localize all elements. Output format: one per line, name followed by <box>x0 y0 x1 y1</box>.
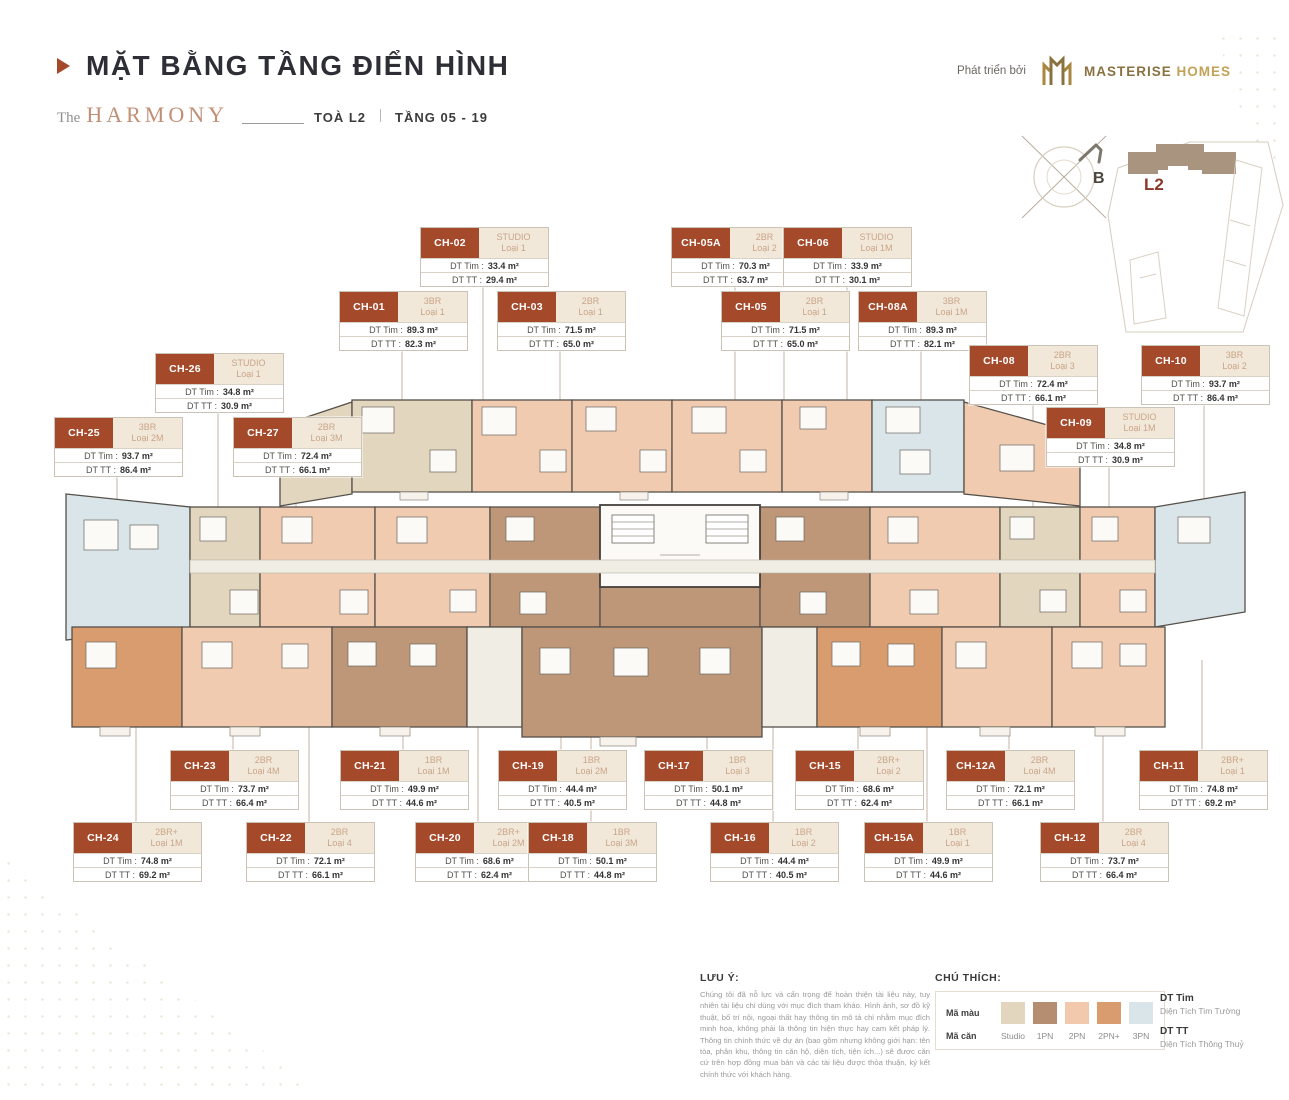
unit-code: CH-15 <box>796 751 854 781</box>
unit-dt-tt: DT TT :29.4 m² <box>421 272 548 286</box>
unit-card: CH-253BRLoại 2MDT Tim :93.7 m²DT TT :86.… <box>54 417 183 477</box>
unit-code: CH-18 <box>529 823 587 853</box>
unit-dt-tim: DT Tim :72.4 m² <box>234 448 361 462</box>
unit-code: CH-22 <box>247 823 305 853</box>
unit-type: 1BRLoại 1M <box>399 751 468 781</box>
unit-code: CH-24 <box>74 823 132 853</box>
unit-type: STUDIOLoại 1M <box>842 228 911 258</box>
unit-card: CH-222BRLoại 4DT Tim :72.1 m²DT TT :66.1… <box>246 822 375 882</box>
unit-dt-tt: DT TT :66.1 m² <box>234 462 361 476</box>
unit-dt-tim: DT Tim :34.8 m² <box>156 384 283 398</box>
unit-card: CH-272BRLoại 3MDT Tim :72.4 m²DT TT :66.… <box>233 417 362 477</box>
unit-dt-tt: DT TT :40.5 m² <box>711 867 838 881</box>
floor-plan-drawing: B L2 <box>0 0 1289 1100</box>
unit-dt-tim: DT Tim :72.1 m² <box>247 853 374 867</box>
unit-dt-tim: DT Tim :71.5 m² <box>722 322 849 336</box>
unit-code: CH-12A <box>947 751 1005 781</box>
unit-dt-tt: DT TT :66.4 m² <box>1041 867 1168 881</box>
unit-dt-tt: DT TT :65.0 m² <box>498 336 625 350</box>
unit-type: 2BRLoại 4 <box>305 823 374 853</box>
unit-dt-tim: DT Tim :72.1 m² <box>947 781 1074 795</box>
unit-code: CH-05 <box>722 292 780 322</box>
unit-dt-tim: DT Tim :68.6 m² <box>416 853 543 867</box>
unit-dt-tim: DT Tim :33.4 m² <box>421 258 548 272</box>
unit-card: CH-103BRLoại 2DT Tim :93.7 m²DT TT :86.4… <box>1141 345 1270 405</box>
unit-code: CH-10 <box>1142 346 1200 376</box>
unit-type: STUDIOLoại 1M <box>1105 408 1174 438</box>
unit-card: CH-02STUDIOLoại 1DT Tim :33.4 m²DT TT :2… <box>420 227 549 287</box>
unit-dt-tt: DT TT :62.4 m² <box>796 795 923 809</box>
unit-dt-tim: DT Tim :93.7 m² <box>55 448 182 462</box>
unit-dt-tim: DT Tim :49.9 m² <box>865 853 992 867</box>
unit-code: CH-20 <box>416 823 474 853</box>
site-plan <box>1108 142 1283 332</box>
unit-dt-tt: DT TT :66.1 m² <box>947 795 1074 809</box>
unit-dt-tt: DT TT :44.8 m² <box>529 867 656 881</box>
unit-card: CH-171BRLoại 3DT Tim :50.1 m²DT TT :44.8… <box>644 750 773 810</box>
unit-code: CH-11 <box>1140 751 1198 781</box>
unit-code: CH-27 <box>234 418 292 448</box>
unit-code: CH-15A <box>865 823 923 853</box>
compass-label: B <box>1093 170 1105 187</box>
unit-type: 3BRLoại 2M <box>113 418 182 448</box>
unit-card: CH-152BR+Loại 2DT Tim :68.6 m²DT TT :62.… <box>795 750 924 810</box>
unit-type: 2BR+Loại 2 <box>854 751 923 781</box>
unit-type: 1BRLoại 2 <box>769 823 838 853</box>
unit-dt-tt: DT TT :86.4 m² <box>1142 390 1269 404</box>
unit-card: CH-161BRLoại 2DT Tim :44.4 m²DT TT :40.5… <box>710 822 839 882</box>
unit-type: STUDIOLoại 1 <box>479 228 548 258</box>
unit-card: CH-15A1BRLoại 1DT Tim :49.9 m²DT TT :44.… <box>864 822 993 882</box>
unit-dt-tim: DT Tim :34.8 m² <box>1047 438 1174 452</box>
unit-dt-tt: DT TT :82.1 m² <box>859 336 986 350</box>
unit-type: STUDIOLoại 1 <box>214 354 283 384</box>
unit-type: 2BRLoại 4 <box>1099 823 1168 853</box>
unit-code: CH-05A <box>672 228 730 258</box>
unit-card: CH-181BRLoại 3MDT Tim :50.1 m²DT TT :44.… <box>528 822 657 882</box>
unit-dt-tim: DT Tim :74.8 m² <box>74 853 201 867</box>
unit-code: CH-12 <box>1041 823 1099 853</box>
unit-card: CH-232BRLoại 4MDT Tim :73.7 m²DT TT :66.… <box>170 750 299 810</box>
unit-code: CH-03 <box>498 292 556 322</box>
unit-dt-tim: DT Tim :33.9 m² <box>784 258 911 272</box>
unit-type: 1BRLoại 2M <box>557 751 626 781</box>
unit-dt-tim: DT Tim :70.3 m² <box>672 258 799 272</box>
unit-dt-tt: DT TT :44.6 m² <box>341 795 468 809</box>
unit-code: CH-08 <box>970 346 1028 376</box>
unit-dt-tt: DT TT :82.3 m² <box>340 336 467 350</box>
unit-card: CH-08A3BRLoại 1MDT Tim :89.3 m²DT TT :82… <box>858 291 987 351</box>
unit-dt-tim: DT Tim :68.6 m² <box>796 781 923 795</box>
unit-card: CH-013BRLoại 1DT Tim :89.3 m²DT TT :82.3… <box>339 291 468 351</box>
unit-code: CH-09 <box>1047 408 1105 438</box>
unit-dt-tt: DT TT :62.4 m² <box>416 867 543 881</box>
unit-type: 2BR+Loại 1M <box>132 823 201 853</box>
unit-dt-tt: DT TT :30.9 m² <box>1047 452 1174 466</box>
unit-type: 3BRLoại 2 <box>1200 346 1269 376</box>
unit-card: CH-191BRLoại 2MDT Tim :44.4 m²DT TT :40.… <box>498 750 627 810</box>
unit-card: CH-052BRLoại 1DT Tim :71.5 m²DT TT :65.0… <box>721 291 850 351</box>
unit-dt-tim: DT Tim :74.8 m² <box>1140 781 1267 795</box>
unit-code: CH-06 <box>784 228 842 258</box>
unit-dt-tim: DT Tim :49.9 m² <box>341 781 468 795</box>
unit-card: CH-122BRLoại 4DT Tim :73.7 m²DT TT :66.4… <box>1040 822 1169 882</box>
unit-type: 1BRLoại 3 <box>703 751 772 781</box>
unit-card: CH-082BRLoại 3DT Tim :72.4 m²DT TT :66.1… <box>969 345 1098 405</box>
unit-type: 2BR+Loại 1 <box>1198 751 1267 781</box>
unit-dt-tt: DT TT :63.7 m² <box>672 272 799 286</box>
unit-code: CH-08A <box>859 292 917 322</box>
unit-card: CH-05A2BRLoại 2DT Tim :70.3 m²DT TT :63.… <box>671 227 800 287</box>
unit-card: CH-09STUDIOLoại 1MDT Tim :34.8 m²DT TT :… <box>1046 407 1175 467</box>
unit-card: CH-242BR+Loại 1MDT Tim :74.8 m²DT TT :69… <box>73 822 202 882</box>
unit-dt-tt: DT TT :30.9 m² <box>156 398 283 412</box>
unit-code: CH-21 <box>341 751 399 781</box>
unit-dt-tim: DT Tim :50.1 m² <box>645 781 772 795</box>
unit-dt-tim: DT Tim :73.7 m² <box>171 781 298 795</box>
unit-type: 2BRLoại 1 <box>780 292 849 322</box>
unit-type: 3BRLoại 1M <box>917 292 986 322</box>
unit-code: CH-23 <box>171 751 229 781</box>
unit-dt-tt: DT TT :86.4 m² <box>55 462 182 476</box>
unit-dt-tt: DT TT :69.2 m² <box>74 867 201 881</box>
unit-dt-tt: DT TT :66.1 m² <box>247 867 374 881</box>
unit-code: CH-02 <box>421 228 479 258</box>
unit-dt-tt: DT TT :30.1 m² <box>784 272 911 286</box>
unit-card: CH-211BRLoại 1MDT Tim :49.9 m²DT TT :44.… <box>340 750 469 810</box>
unit-dt-tt: DT TT :66.4 m² <box>171 795 298 809</box>
unit-code: CH-19 <box>499 751 557 781</box>
unit-card: CH-112BR+Loại 1DT Tim :74.8 m²DT TT :69.… <box>1139 750 1268 810</box>
unit-card: CH-26STUDIOLoại 1DT Tim :34.8 m²DT TT :3… <box>155 353 284 413</box>
unit-type: 2BRLoại 4M <box>1005 751 1074 781</box>
unit-type: 2BRLoại 1 <box>556 292 625 322</box>
unit-type: 1BRLoại 3M <box>587 823 656 853</box>
unit-code: CH-17 <box>645 751 703 781</box>
unit-dt-tim: DT Tim :50.1 m² <box>529 853 656 867</box>
unit-type: 2BRLoại 3M <box>292 418 361 448</box>
unit-dt-tim: DT Tim :72.4 m² <box>970 376 1097 390</box>
unit-dt-tt: DT TT :66.1 m² <box>970 390 1097 404</box>
unit-code: CH-26 <box>156 354 214 384</box>
unit-dt-tim: DT Tim :89.3 m² <box>859 322 986 336</box>
unit-dt-tim: DT Tim :93.7 m² <box>1142 376 1269 390</box>
unit-dt-tim: DT Tim :71.5 m² <box>498 322 625 336</box>
unit-dt-tt: DT TT :44.6 m² <box>865 867 992 881</box>
unit-type: 3BRLoại 1 <box>398 292 467 322</box>
unit-card: CH-12A2BRLoại 4MDT Tim :72.1 m²DT TT :66… <box>946 750 1075 810</box>
unit-dt-tim: DT Tim :44.4 m² <box>499 781 626 795</box>
unit-card: CH-032BRLoại 1DT Tim :71.5 m²DT TT :65.0… <box>497 291 626 351</box>
unit-code: CH-01 <box>340 292 398 322</box>
unit-dt-tt: DT TT :69.2 m² <box>1140 795 1267 809</box>
unit-type: 2BRLoại 3 <box>1028 346 1097 376</box>
unit-card: CH-202BR+Loại 2MDT Tim :68.6 m²DT TT :62… <box>415 822 544 882</box>
unit-dt-tt: DT TT :65.0 m² <box>722 336 849 350</box>
unit-code: CH-25 <box>55 418 113 448</box>
unit-card: CH-06STUDIOLoại 1MDT Tim :33.9 m²DT TT :… <box>783 227 912 287</box>
unit-type: 1BRLoại 1 <box>923 823 992 853</box>
unit-dt-tt: DT TT :44.8 m² <box>645 795 772 809</box>
unit-dt-tim: DT Tim :44.4 m² <box>711 853 838 867</box>
unit-code: CH-16 <box>711 823 769 853</box>
unit-dt-tim: DT Tim :73.7 m² <box>1041 853 1168 867</box>
unit-dt-tim: DT Tim :89.3 m² <box>340 322 467 336</box>
site-plan-l2-label: L2 <box>1144 175 1164 194</box>
unit-type: 2BRLoại 4M <box>229 751 298 781</box>
unit-dt-tt: DT TT :40.5 m² <box>499 795 626 809</box>
